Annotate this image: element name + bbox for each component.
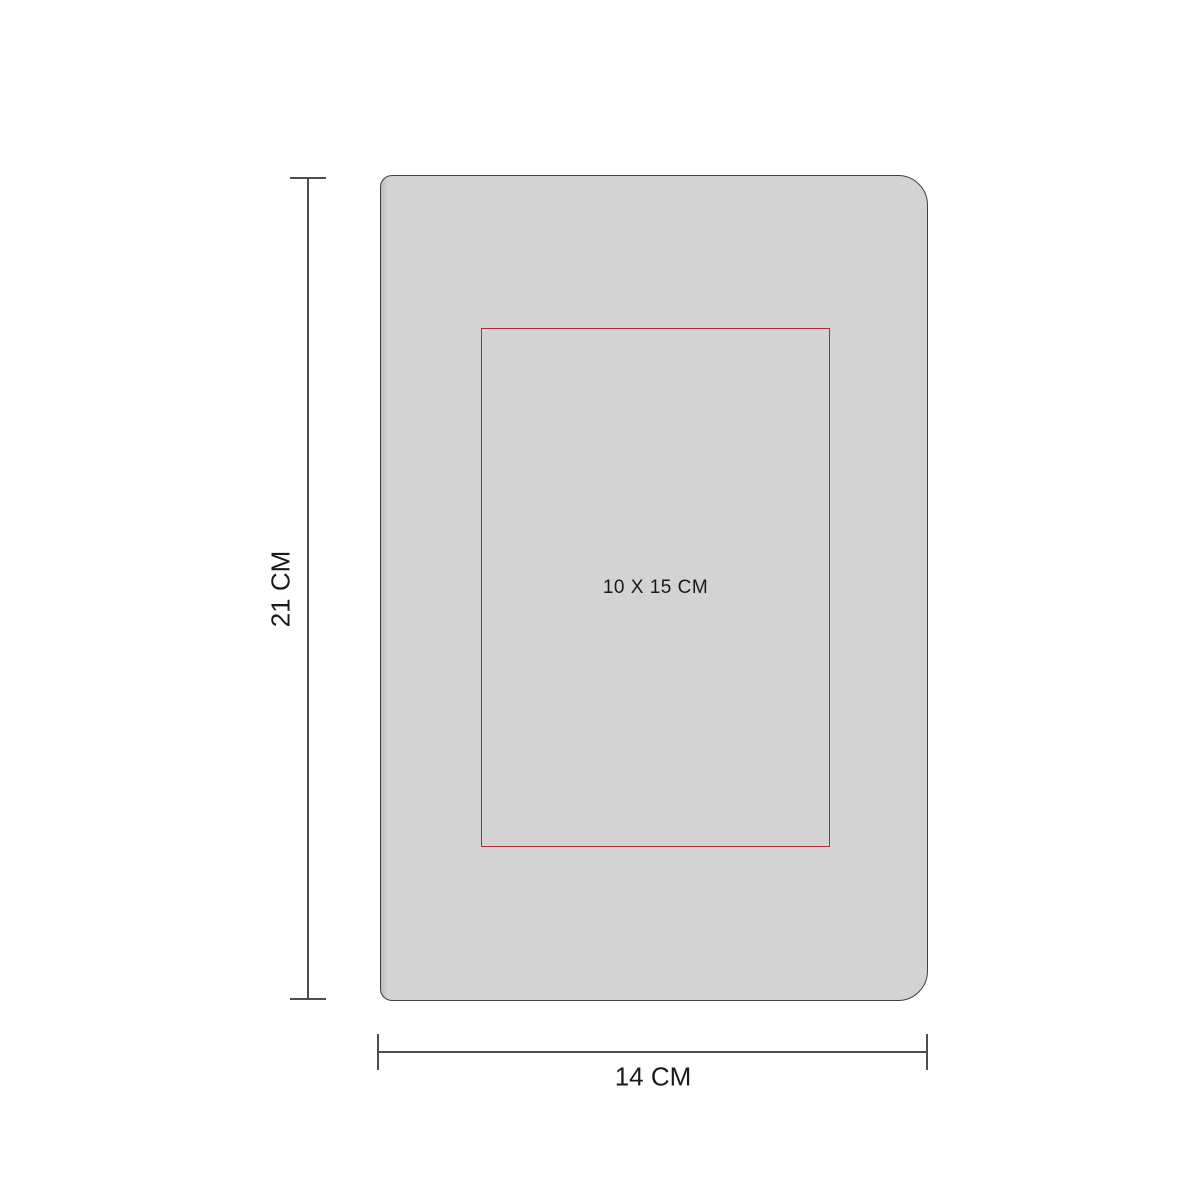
width-dimension-tick-right — [926, 1034, 928, 1070]
height-dimension-line — [307, 178, 309, 1000]
height-dimension-tick-bottom — [290, 998, 326, 1000]
dimension-diagram: 10 X 15 CM 21 CM 14 CM — [0, 0, 1200, 1200]
print-area-label: 10 X 15 CM — [603, 577, 708, 599]
height-dimension-tick-top — [290, 177, 326, 179]
width-dimension-line — [378, 1051, 927, 1053]
print-area-rect: 10 X 15 CM — [481, 328, 830, 847]
width-dimension-tick-left — [377, 1034, 379, 1070]
width-dimension-label: 14 CM — [615, 1062, 692, 1093]
product-shape: 10 X 15 CM — [380, 175, 928, 1001]
product-spine-shade — [381, 176, 388, 1000]
height-dimension-label: 21 CM — [266, 551, 297, 628]
